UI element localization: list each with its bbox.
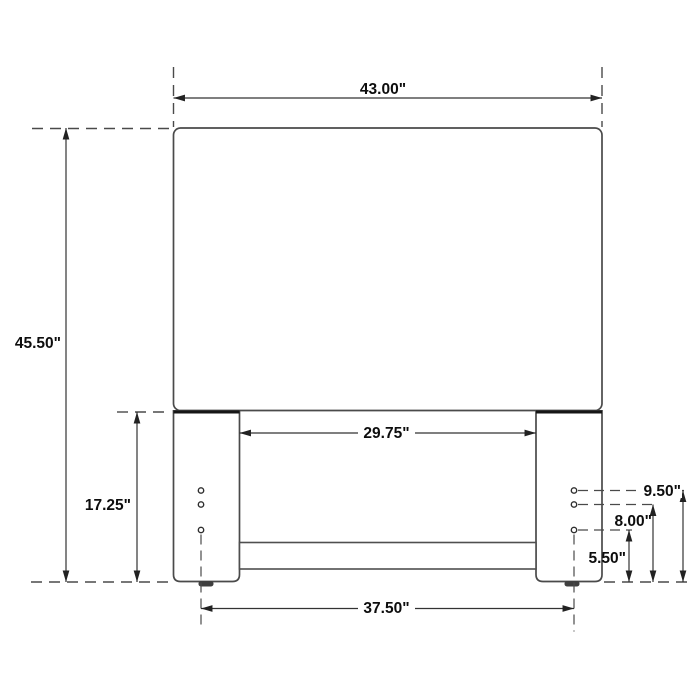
bottom-hole-height-dimension-label: 5.50" (588, 550, 626, 567)
overall-height-dimension-label: 45.50" (15, 335, 61, 352)
headboard-panel (174, 128, 603, 411)
left-leg-top-bolt-hole (198, 488, 203, 493)
diagram-canvas: 43.00" 45.50" 17.25" 29.75" 37.50" 9.50"… (0, 0, 700, 700)
right-foot-glide (565, 581, 580, 587)
cross-rail (240, 543, 537, 570)
right-leg-bottom-bolt-hole (571, 527, 576, 532)
leg-height-dimension-label: 17.25" (85, 497, 131, 514)
headboard-structure (174, 128, 603, 587)
bolt-hole-span-dimension-label: 37.50" (363, 600, 409, 617)
right-leg-top-bolt-hole (571, 488, 576, 493)
right-leg-middle-bolt-hole (571, 502, 576, 507)
left-leg (174, 411, 240, 582)
overall-width-dimension-label: 43.00" (360, 81, 406, 98)
top-hole-height-dimension-label: 9.50" (643, 483, 681, 500)
middle-hole-height-dimension-label: 8.00" (614, 513, 652, 530)
left-leg-middle-bolt-hole (198, 502, 203, 507)
inner-leg-span-dimension-label: 29.75" (363, 425, 409, 442)
left-leg-bottom-bolt-hole (198, 527, 203, 532)
headboard-dimension-diagram: 43.00" 45.50" 17.25" 29.75" 37.50" 9.50"… (0, 0, 700, 700)
